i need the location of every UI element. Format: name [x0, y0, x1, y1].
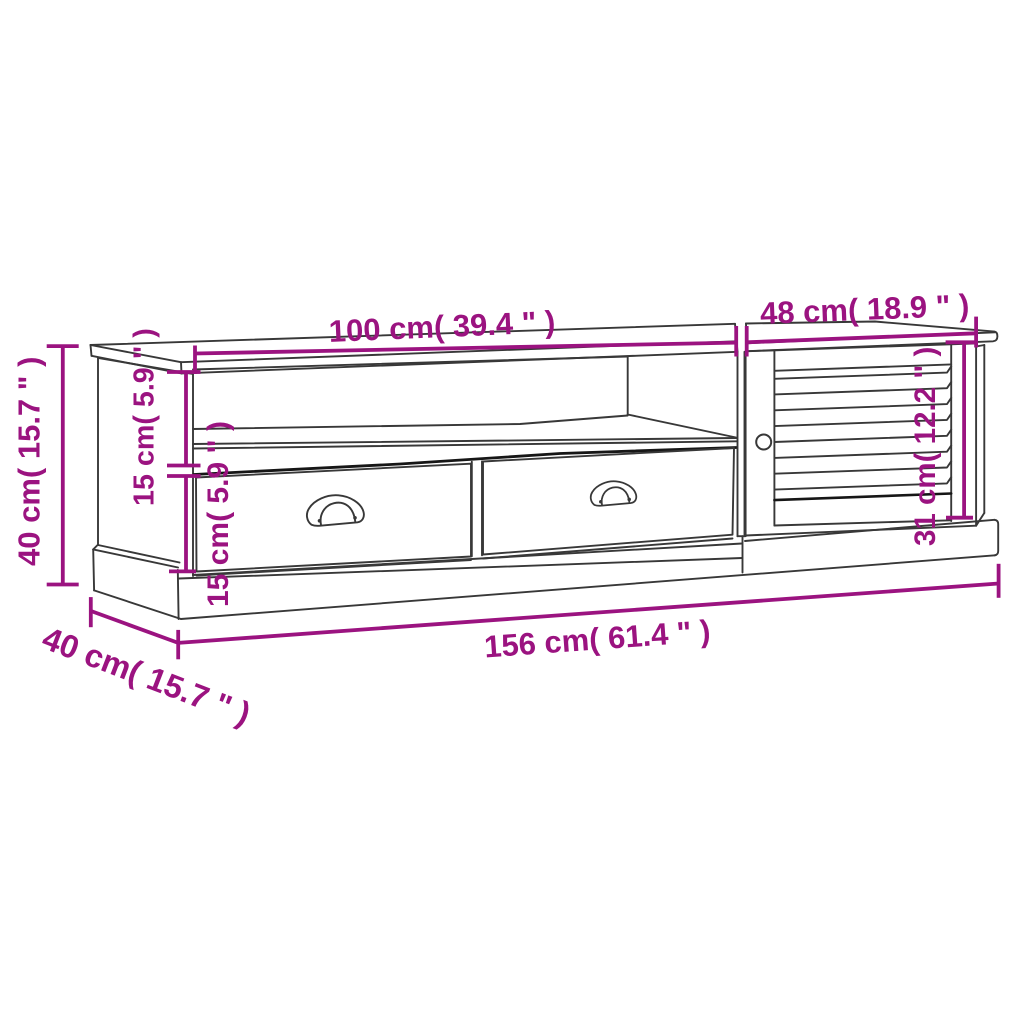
svg-text:40 cm( 15.7 " ): 40 cm( 15.7 " ) [12, 357, 47, 566]
svg-text:15 cm( 5.9 " ): 15 cm( 5.9 " ) [202, 421, 235, 607]
svg-text:15 cm( 5.9 " ): 15 cm( 5.9 " ) [129, 328, 161, 506]
svg-text:31 cm( 12.2 " ): 31 cm( 12.2 " ) [909, 347, 942, 546]
